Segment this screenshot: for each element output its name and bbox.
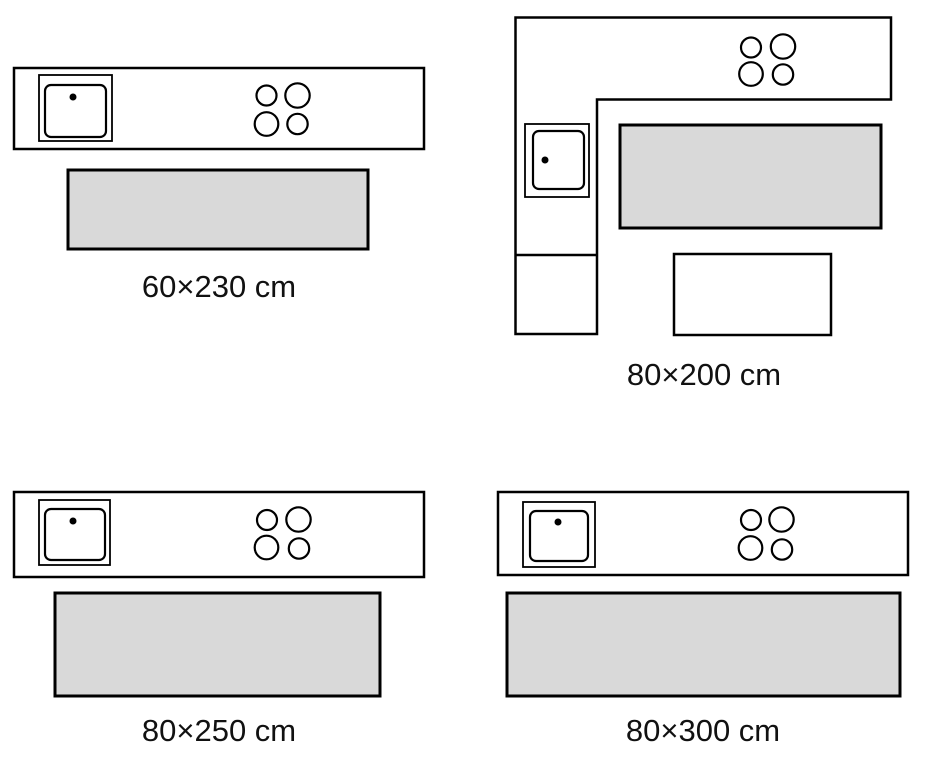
burner-small-icon bbox=[257, 510, 277, 530]
burner-small-icon bbox=[741, 510, 761, 530]
sink-icon bbox=[523, 502, 595, 567]
faucet-dot bbox=[70, 94, 77, 101]
burner-large-icon bbox=[769, 507, 793, 531]
kitchen-layout-80x200 bbox=[516, 18, 892, 336]
sink-basin bbox=[530, 511, 588, 561]
size-label-80x200: 80×200 cm bbox=[516, 358, 892, 392]
dining-table-outline bbox=[674, 254, 831, 335]
burner-small-icon bbox=[772, 539, 792, 559]
burner-large-icon bbox=[255, 112, 279, 136]
size-label-60x230: 60×230 cm bbox=[14, 270, 424, 304]
faucet-dot bbox=[542, 157, 549, 164]
burner-small-icon bbox=[741, 38, 761, 58]
burner-large-icon bbox=[285, 83, 309, 107]
faucet-dot bbox=[70, 518, 77, 525]
sink-icon bbox=[525, 124, 589, 197]
burner-large-icon bbox=[771, 34, 795, 58]
burner-large-icon bbox=[739, 62, 763, 86]
burner-large-icon bbox=[286, 507, 310, 531]
rug-swatch bbox=[507, 593, 900, 696]
kitchen-rug-size-guide: 60×230 cm 80×200 cm 80×250 cm 80×300 cm bbox=[0, 0, 930, 760]
burner-small-icon bbox=[257, 86, 277, 106]
sink-icon bbox=[39, 75, 112, 141]
size-label-80x250: 80×250 cm bbox=[14, 714, 424, 748]
faucet-dot bbox=[555, 519, 562, 526]
kitchen-layout-80x250 bbox=[14, 492, 424, 696]
kitchen-layout-60x230 bbox=[14, 68, 424, 249]
burner-large-icon bbox=[255, 536, 279, 560]
burner-small-icon bbox=[773, 64, 793, 84]
sink-icon bbox=[39, 500, 110, 565]
burner-small-icon bbox=[287, 114, 307, 134]
size-label-80x300: 80×300 cm bbox=[498, 714, 908, 748]
rug-swatch bbox=[55, 593, 380, 696]
burner-small-icon bbox=[289, 538, 309, 558]
sink-basin bbox=[45, 85, 106, 137]
sink-basin bbox=[45, 509, 105, 560]
rug-swatch bbox=[68, 170, 368, 249]
burner-large-icon bbox=[739, 536, 763, 560]
kitchen-layout-80x300 bbox=[498, 492, 908, 696]
sink-basin bbox=[533, 131, 584, 189]
rug-swatch bbox=[620, 125, 881, 228]
